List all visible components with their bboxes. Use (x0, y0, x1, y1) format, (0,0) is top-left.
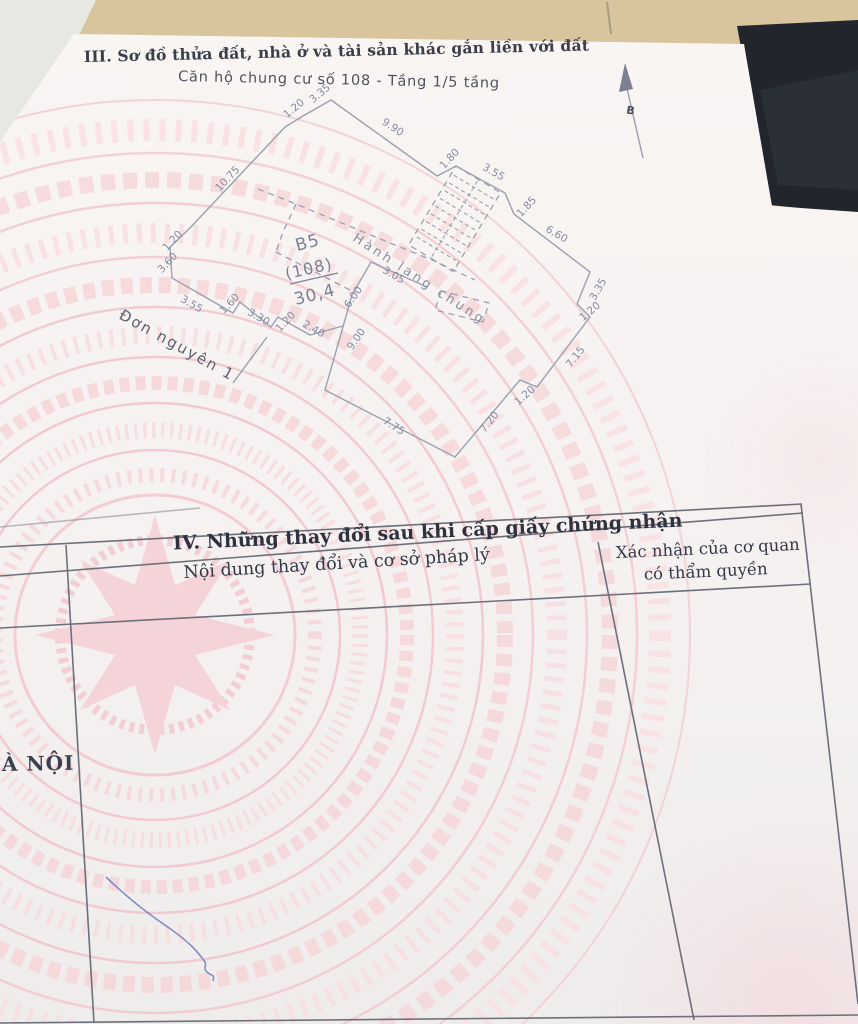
photo-of-certificate-page: III. Sơ đồ thửa đất, nhà ở và tài sản kh… (0, 0, 858, 1024)
margin-text: À NỘI (1, 749, 75, 776)
certificate-scene: III. Sơ đồ thửa đất, nhà ở và tài sản kh… (0, 0, 858, 1024)
